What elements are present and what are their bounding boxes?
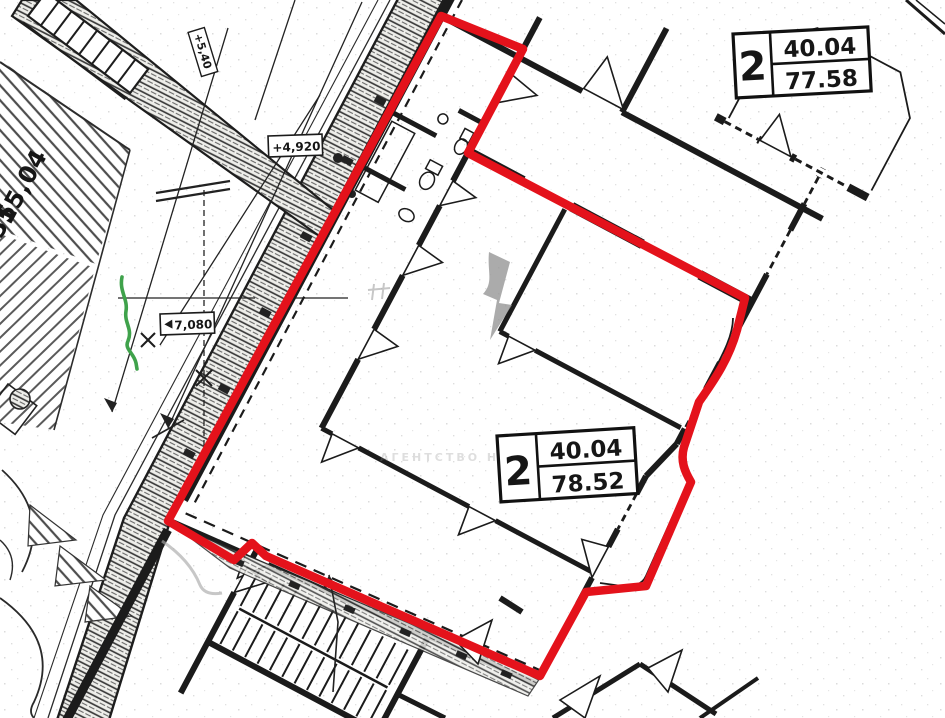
elevation-mark-2: 7,080: [160, 312, 215, 335]
unit-label-selected: 2 40.04 78.52: [497, 428, 638, 502]
unit-total-area: 78.52: [551, 468, 625, 498]
unit-living-area: 40.04: [549, 435, 623, 465]
unit-living-area: 40.04: [783, 34, 857, 64]
elevation-mark-2-text: 7,080: [174, 317, 212, 332]
unit-rooms-count: 2: [503, 448, 534, 496]
elevation-mark-1: +4,920: [268, 134, 323, 157]
unit-label-neighbor: 2 40.04 77.58: [733, 27, 871, 98]
unit-rooms-count: 2: [738, 43, 768, 90]
floorplan-canvas: 15,04 55: [0, 0, 945, 718]
floorplan-page: 15,04 55: [0, 0, 945, 718]
elevation-mark-1-text: +4,920: [272, 139, 320, 155]
tree-symbol: [10, 389, 30, 409]
unit-total-area: 77.58: [785, 66, 859, 96]
